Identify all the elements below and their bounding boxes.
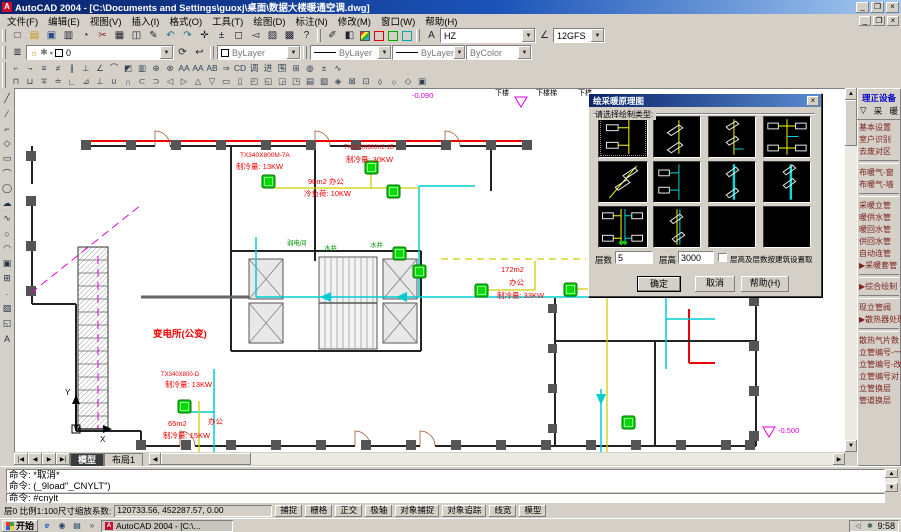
toolbar-button[interactable]: ▷ <box>177 76 191 88</box>
toolbar-grip[interactable] <box>303 46 307 59</box>
toolbar-button[interactable]: 进 <box>261 62 275 74</box>
riser-type-cell-11[interactable] <box>708 206 756 248</box>
toolbar-button[interactable]: ∪ <box>107 76 121 88</box>
zoom-realtime-icon[interactable]: ± <box>213 28 230 43</box>
doc-close-button[interactable]: × <box>887 16 899 26</box>
autocad-icon: A <box>105 522 113 530</box>
lineweight-sample <box>396 52 418 53</box>
mtext-icon[interactable]: A <box>1 331 14 346</box>
toolbar-button[interactable]: ⇒ <box>219 62 233 74</box>
command-history: 命令: *取消* 命令: (_9load"_CNYLT") <box>6 469 885 492</box>
palette-item[interactable] <box>859 274 899 278</box>
palette-item[interactable] <box>859 295 899 299</box>
status-toggle[interactable]: 模型 <box>519 505 546 517</box>
lineweight-dropdown[interactable]: ByLayer ▼ <box>392 45 466 60</box>
open-icon[interactable]: ▤ <box>26 28 43 43</box>
toolbar-button[interactable]: ∥ <box>65 62 79 74</box>
toolbar-button[interactable]: ◱ <box>261 76 275 88</box>
plotstyle-dropdown[interactable]: ByColor ▼ <box>466 45 532 60</box>
ok-button[interactable]: 确定 <box>637 276 681 292</box>
menu-item[interactable]: 编辑(E) <box>43 14 85 28</box>
polyline-icon[interactable]: ⌐ <box>1 121 14 136</box>
doc-minimize-button[interactable]: _ <box>859 16 871 26</box>
riser-type-cell-9[interactable] <box>598 206 648 248</box>
floors-label: 层数 <box>595 254 612 266</box>
restore-button[interactable]: ❐ <box>871 2 884 13</box>
red-frame-icon[interactable] <box>374 31 384 41</box>
toolbar-button[interactable]: ▥ <box>135 62 149 74</box>
dim-style-dropdown[interactable]: 12GFS ▼ <box>553 28 605 43</box>
doc-restore-button[interactable]: ❐ <box>873 16 885 26</box>
print-icon[interactable]: ▥ <box>60 28 77 43</box>
revision-cloud-icon[interactable]: ☁ <box>1 196 14 211</box>
palette-title: 理正设备 <box>857 92 901 104</box>
riser-type-cell-2[interactable] <box>653 116 701 158</box>
make-block-icon[interactable]: ⊞ <box>1 271 14 286</box>
heating-schematic-dialog: 绘采暖原理图 × 请选择绘制类型: 层数 层高 层高及层数按建筑设置取 确定 取… <box>588 93 822 297</box>
scroll-down-icon[interactable]: ▼ <box>885 483 898 492</box>
layer-dropdown[interactable]: ☼ ✱ ▪ 0 ▼ <box>26 45 174 60</box>
toolbar-button[interactable]: ⊥ <box>79 62 93 74</box>
toolbar-button[interactable]: ⊃ <box>149 76 163 88</box>
current-layer: 0 <box>66 48 71 58</box>
palette-item[interactable]: 基本设置 <box>857 122 901 134</box>
palette-item[interactable]: 去废对区 <box>857 146 901 158</box>
palette-item[interactable]: 现立管阀 <box>857 302 901 314</box>
riser-type-cell-5[interactable] <box>598 161 648 203</box>
rectangle-icon[interactable]: ▭ <box>1 151 14 166</box>
window-title: AutoCAD 2004 - [C:\Documents and Setting… <box>15 0 852 14</box>
construction-line-icon[interactable]: ⁄ <box>1 106 14 121</box>
overflow-chevron-icon[interactable]: » <box>86 520 98 531</box>
palette-item[interactable]: ▶散热器处理 <box>857 314 901 326</box>
toolbar-button[interactable]: ± <box>317 62 331 74</box>
status-toggle[interactable]: 对象捕捉 <box>395 505 439 517</box>
point-icon[interactable]: · <box>1 286 14 301</box>
dialog-title: 绘采暖原理图 <box>593 95 807 107</box>
plugin-toolbar-2: ⊓⊔∓≐∟⊿⊥∪∩⊂⊃◁▷△▽▭▯◰◱◲◳▤▧◈⊠⊡◊○◇▣ <box>0 75 901 88</box>
toolbar-button[interactable]: ◊ <box>373 76 387 88</box>
chevron-down-icon[interactable]: ▼ <box>454 46 465 59</box>
palette-item[interactable] <box>859 193 899 197</box>
palette-item[interactable]: 立管换层 <box>857 383 901 395</box>
toolbar-button[interactable]: ⌐ <box>9 62 23 74</box>
properties-icon[interactable]: ▨ <box>264 28 281 43</box>
palette-items: 基本设置室户识别去废对区布暖气-窗布暖气-墙采暖立管暖供水管暖回水管供回水管自动… <box>857 122 901 407</box>
ellipse-icon[interactable]: ○ <box>1 226 14 241</box>
scroll-up-icon[interactable]: ▲ <box>885 469 898 478</box>
toolbar-button[interactable]: ⊞ <box>289 62 303 74</box>
app-icon: A <box>2 2 12 12</box>
toolbar-button[interactable]: ≠ <box>51 62 65 74</box>
menu-item[interactable]: 工具(T) <box>207 14 248 28</box>
arc-icon[interactable]: ⌒ <box>1 166 14 181</box>
riser-type-cell-10[interactable] <box>653 206 701 248</box>
linetype-dropdown[interactable]: ByLayer ▼ <box>310 45 392 60</box>
circle-icon[interactable]: ◯ <box>1 181 14 196</box>
copy-icon[interactable]: ▦ <box>111 28 128 43</box>
toolbar-button[interactable]: ▤ <box>303 76 317 88</box>
autocad-window: { "window": { "title": "AutoCAD 2004 - [… <box>0 0 901 532</box>
toolbar-button[interactable]: ∟ <box>65 76 79 88</box>
command-window: 命令: *取消* 命令: (_9load"_CNYLT") ▲ ▼ 命令: #c… <box>0 466 901 503</box>
tab-nav-last[interactable]: ▶| <box>56 453 70 465</box>
spline-icon[interactable]: ∿ <box>1 211 14 226</box>
toolbar-button[interactable]: ▭ <box>219 76 233 88</box>
region-icon[interactable]: ◱ <box>1 316 14 331</box>
color-dropdown[interactable]: ByLayer ▼ <box>217 45 301 60</box>
palette-item[interactable]: 采暖立管 <box>857 200 901 212</box>
toolbar-button[interactable]: ∓ <box>37 76 51 88</box>
help-button[interactable]: 帮助(H) <box>741 276 789 292</box>
menu-item[interactable]: 插入(I) <box>126 14 164 28</box>
toolbar-button[interactable]: AB <box>205 62 219 74</box>
scrollbar-thumb[interactable] <box>845 100 857 146</box>
toolbar-button[interactable]: ▣ <box>415 76 429 88</box>
tab-nav-prev[interactable]: ◀ <box>28 453 42 465</box>
layer-on-icon: ☼ <box>30 48 38 58</box>
toolbar-button[interactable]: ⊔ <box>23 76 37 88</box>
toolbar-button[interactable]: 调 <box>247 62 261 74</box>
quick-launch-icon[interactable]: ◉ <box>56 520 68 531</box>
quick-launch-icon[interactable]: ▤ <box>71 520 83 531</box>
taskbar: 开始 e ◉ ▤ » A AutoCAD 2004 - [C:\... ◁ ✱ … <box>0 518 901 532</box>
vertical-scrollbar[interactable]: ▲ ▼ <box>845 88 857 452</box>
dialog-title-bar[interactable]: 绘采暖原理图 × <box>589 94 821 107</box>
menu-item[interactable]: 格式(O) <box>164 14 207 28</box>
toolbar-button[interactable]: ○ <box>387 76 401 88</box>
tray-icon[interactable]: ✱ <box>865 521 874 530</box>
toolbar-grip[interactable] <box>2 75 6 88</box>
palette-item[interactable]: 布暖气-墙 <box>857 179 901 191</box>
close-icon[interactable]: × <box>807 96 819 106</box>
status-toggle[interactable]: 捕捉 <box>275 505 302 517</box>
toolbar-button[interactable]: ≡ <box>37 62 51 74</box>
toolbar-button[interactable]: △ <box>191 76 205 88</box>
toolbar-button[interactable]: ⊂ <box>135 76 149 88</box>
plugin-toolbar-1: ⌐¬≡≠∥⊥∠⌒◩▥⊕⊗AAAAAB⇒CD调进围⊞◍±∿ <box>0 61 901 75</box>
toolbar-grip[interactable] <box>317 29 321 42</box>
toolbar-grip[interactable] <box>210 46 214 59</box>
status-toggle[interactable]: 极轴 <box>365 505 392 517</box>
palette-item[interactable]: ▶综合绘制 <box>857 281 901 293</box>
palette-item[interactable]: 暖回水管 <box>857 224 901 236</box>
status-toggle[interactable]: 对象追踪 <box>442 505 486 517</box>
linetype-sample <box>314 52 336 53</box>
toolbar-button[interactable]: ≐ <box>51 76 65 88</box>
chevron-down-icon[interactable]: ▼ <box>522 29 535 42</box>
save-icon[interactable]: ▣ <box>43 28 60 43</box>
standard-toolbar: □▤▣▥◔✂▦◫✎↶↷✛±◻◅▨▩? ✐ ◧ A HZ ▼ ∠ 12GFS ▼ <box>0 27 901 44</box>
toolbar-button[interactable]: ▯ <box>233 76 247 88</box>
palette-item[interactable]: 立管编号-改 <box>857 359 901 371</box>
cut-icon[interactable]: ✂ <box>94 28 111 43</box>
layer-lock-icon: ▪ <box>50 48 53 58</box>
palette-category[interactable]: ▽ 采 暖 <box>857 104 901 120</box>
make-layer-current-icon[interactable]: ⟳ <box>174 45 191 60</box>
toolbar-button[interactable]: 围 <box>275 62 289 74</box>
print-preview-icon[interactable]: ◔ <box>77 28 94 43</box>
scroll-up-icon[interactable]: ▲ <box>845 88 857 100</box>
palette-item[interactable]: 布暖气-窗 <box>857 167 901 179</box>
pan-icon[interactable]: ✛ <box>196 28 213 43</box>
riser-type-cell-7[interactable] <box>708 161 756 203</box>
toolbar-button[interactable]: ◩ <box>121 62 135 74</box>
status-toggle[interactable]: 线宽 <box>489 505 516 517</box>
floors-input[interactable] <box>615 251 653 264</box>
taskbar-task-autocad[interactable]: A AutoCAD 2004 - [C:\... <box>101 520 233 532</box>
system-tray: ◁ ✱ 9:58 <box>849 520 899 532</box>
toolbar-button[interactable]: ◍ <box>303 62 317 74</box>
palette-item[interactable]: 立管编号对 <box>857 371 901 383</box>
text-style-icon[interactable]: A <box>423 28 440 43</box>
scroll-down-icon[interactable]: ▼ <box>845 440 857 452</box>
layer-previous-icon[interactable]: ↩ <box>191 45 208 60</box>
toolbar-button[interactable]: ⊥ <box>93 76 107 88</box>
draw-toolbar: ╱⁄⌐◇▭⌒◯☁∿○◠▣⊞·▨◱A <box>0 88 14 466</box>
dialog-prompt: 请选择绘制类型: <box>595 109 656 120</box>
tab-nav-first[interactable]: |◀ <box>14 453 28 465</box>
cancel-button[interactable]: 取消 <box>695 276 735 292</box>
hatch-icon[interactable]: ▨ <box>1 301 14 316</box>
ellipse-arc-icon[interactable]: ◠ <box>1 241 14 256</box>
toolbar-button[interactable]: ¬ <box>23 62 37 74</box>
riser-type-cell-1[interactable] <box>598 116 648 158</box>
menu-bar: 文件(F)编辑(E)视图(V)插入(I)格式(O)工具(T)绘图(D)标注(N)… <box>0 14 901 27</box>
polygon-icon[interactable]: ◇ <box>1 136 14 151</box>
palette-item[interactable] <box>859 160 899 164</box>
match-properties-icon[interactable]: ✎ <box>145 28 162 43</box>
green-frame-icon[interactable] <box>388 31 398 41</box>
checkbox-label: 层高及层数按建筑设置取 <box>730 254 813 265</box>
title-bar: A AutoCAD 2004 - [C:\Documents and Setti… <box>0 0 901 14</box>
palette-item[interactable]: 立管编号-一 <box>857 347 901 359</box>
tab-model[interactable]: 模型 <box>70 453 104 466</box>
start-button[interactable]: 开始 <box>2 520 38 532</box>
palette-item[interactable]: 室户识别 <box>857 134 901 146</box>
zoom-previous-icon[interactable]: ◅ <box>247 28 264 43</box>
ie-icon[interactable]: e <box>41 520 53 531</box>
layers-icon[interactable]: ≣ <box>9 45 26 60</box>
collapse-icon[interactable]: ▽ <box>860 105 867 117</box>
new-icon[interactable]: □ <box>9 28 26 43</box>
toolbar-button[interactable]: ⊠ <box>345 76 359 88</box>
menu-item[interactable]: 绘图(D) <box>248 14 290 28</box>
palette-item[interactable]: ▶采暖套管 <box>857 260 901 272</box>
volume-icon[interactable]: ◁ <box>853 521 862 530</box>
toolbar-button[interactable]: CD <box>233 62 247 74</box>
tab-row: |◀ ◀ ▶ ▶| 模型 布局1 ◀ ▶ <box>14 452 845 466</box>
palette-item[interactable]: 暖供水管 <box>857 212 901 224</box>
hvac-palette: 理正设备 ▽ 采 暖 基本设置室户识别去废对区布暖气-窗布暖气-墙采暖立管暖供水… <box>857 88 901 466</box>
layer-tools-icon[interactable]: ◧ <box>341 28 358 43</box>
palette-item[interactable]: 自动连管 <box>857 248 901 260</box>
toolbar-button[interactable]: ◁ <box>163 76 177 88</box>
status-toggle[interactable]: 正交 <box>335 505 362 517</box>
from-building-checkbox[interactable] <box>718 253 727 262</box>
toolbar-button[interactable]: ∿ <box>331 62 345 74</box>
menu-item[interactable]: 文件(F) <box>2 14 43 28</box>
zoom-window-icon[interactable]: ◻ <box>230 28 247 43</box>
command-history-line: 命令: *取消* <box>9 470 882 481</box>
scroll-left-icon[interactable]: ◀ <box>149 453 161 465</box>
status-bar: 层0 比例1:100尺寸缩放系数: 120733.56, 452287.57, … <box>0 503 901 518</box>
palette-item[interactable]: 供回水管 <box>857 236 901 248</box>
chevron-down-icon[interactable]: ▼ <box>287 46 300 59</box>
toolbar-button[interactable]: AA <box>191 62 205 74</box>
cyan-frame-icon[interactable] <box>402 31 412 41</box>
menu-item[interactable]: 窗口(W) <box>376 14 420 28</box>
status-toggle[interactable]: 栅格 <box>305 505 332 517</box>
riser-type-cell-8[interactable] <box>763 161 811 203</box>
toolbar-button[interactable]: ⊡ <box>359 76 373 88</box>
toolbar-grip[interactable] <box>2 46 6 59</box>
toolbar-button[interactable]: AA <box>177 62 191 74</box>
windows-flag-icon <box>6 522 14 530</box>
palette-item[interactable]: 管道换层 <box>857 395 901 407</box>
minimize-button[interactable]: _ <box>856 2 869 13</box>
redo-icon[interactable]: ↷ <box>179 28 196 43</box>
riser-type-cell-4[interactable] <box>763 116 811 158</box>
menu-item[interactable]: 帮助(H) <box>420 14 462 28</box>
height-label: 层高 <box>659 254 676 266</box>
coordinate-readout: 120733.56, 452287.57, 0.00 <box>114 505 272 517</box>
palette-item[interactable]: 散热气片数 <box>857 335 901 347</box>
close-button[interactable]: × <box>886 2 899 13</box>
menu-item[interactable]: 视图(V) <box>85 14 127 28</box>
height-input[interactable] <box>678 251 714 264</box>
horizontal-scrollbar[interactable]: ◀ ▶ <box>149 453 845 465</box>
toolbar-button[interactable]: ⌒ <box>107 62 121 74</box>
toolbar-button[interactable]: ◲ <box>275 76 289 88</box>
menu-item[interactable]: 修改(M) <box>333 14 376 28</box>
tab-layout1[interactable]: 布局1 <box>104 453 143 466</box>
riser-type-cell-3[interactable] <box>708 116 756 158</box>
clock: 9:58 <box>877 521 895 531</box>
color-swatch-icon[interactable] <box>360 31 370 41</box>
toolbar-button[interactable]: ◇ <box>401 76 415 88</box>
undo-icon[interactable]: ↶ <box>162 28 179 43</box>
chevron-down-icon[interactable]: ▼ <box>378 46 391 59</box>
paste-icon[interactable]: ◫ <box>128 28 145 43</box>
command-input-line[interactable]: 命令: #cnylt <box>6 493 885 503</box>
chevron-down-icon[interactable]: ▼ <box>591 29 604 42</box>
layers-toolbar: ≣ ☼ ✱ ▪ 0 ▼ ⟳ ↩ ByLayer ▼ ByLayer ▼ ByLa… <box>0 44 901 61</box>
toolbar-grip[interactable] <box>2 62 6 75</box>
command-history-line: 命令: (_9load"_CNYLT") <box>9 481 882 492</box>
dim-style-icon[interactable]: ∠ <box>536 28 553 43</box>
toolbar-button[interactable]: ⊗ <box>163 62 177 74</box>
layer-color-swatch <box>55 49 63 57</box>
tab-nav-next[interactable]: ▶ <box>42 453 56 465</box>
toolbar-button[interactable]: ⊿ <box>79 76 93 88</box>
menu-item[interactable]: 标注(N) <box>291 14 333 28</box>
palette-item[interactable] <box>859 328 899 332</box>
toolbar-button[interactable]: ⊓ <box>9 76 23 88</box>
chevron-down-icon[interactable]: ▼ <box>518 46 531 59</box>
toolbar-button[interactable]: ∩ <box>121 76 135 88</box>
toolbar-button[interactable]: ◈ <box>331 76 345 88</box>
riser-type-cell-6[interactable] <box>653 161 701 203</box>
scale-info: 层0 比例1:100尺寸缩放系数: <box>4 505 111 517</box>
scrollbar-thumb[interactable] <box>161 453 251 465</box>
help-icon[interactable]: ? <box>298 28 315 43</box>
toolbar-button[interactable]: ▧ <box>317 76 331 88</box>
color-swatch <box>221 49 229 57</box>
designcenter-icon[interactable]: ▩ <box>281 28 298 43</box>
layer-freeze-icon: ✱ <box>40 47 48 58</box>
chevron-down-icon[interactable]: ▼ <box>160 46 173 59</box>
toolbar-grip[interactable] <box>2 29 6 42</box>
pen-icon[interactable]: ✐ <box>324 28 341 43</box>
line-icon[interactable]: ╱ <box>1 91 14 106</box>
toolbar-button[interactable]: ◳ <box>289 76 303 88</box>
toolbar-button[interactable]: ∠ <box>93 62 107 74</box>
text-style-dropdown[interactable]: HZ ▼ <box>440 28 536 43</box>
command-scrollbar[interactable]: ▲ ▼ <box>885 469 898 492</box>
toolbar-button[interactable]: ◰ <box>247 76 261 88</box>
insert-block-icon[interactable]: ▣ <box>1 256 14 271</box>
riser-type-cell-12[interactable] <box>763 206 811 248</box>
toolbar-grip[interactable] <box>416 29 420 42</box>
toolbar-button[interactable]: ⊕ <box>149 62 163 74</box>
scroll-right-icon[interactable]: ▶ <box>833 453 845 465</box>
toolbar-button[interactable]: ▽ <box>205 76 219 88</box>
